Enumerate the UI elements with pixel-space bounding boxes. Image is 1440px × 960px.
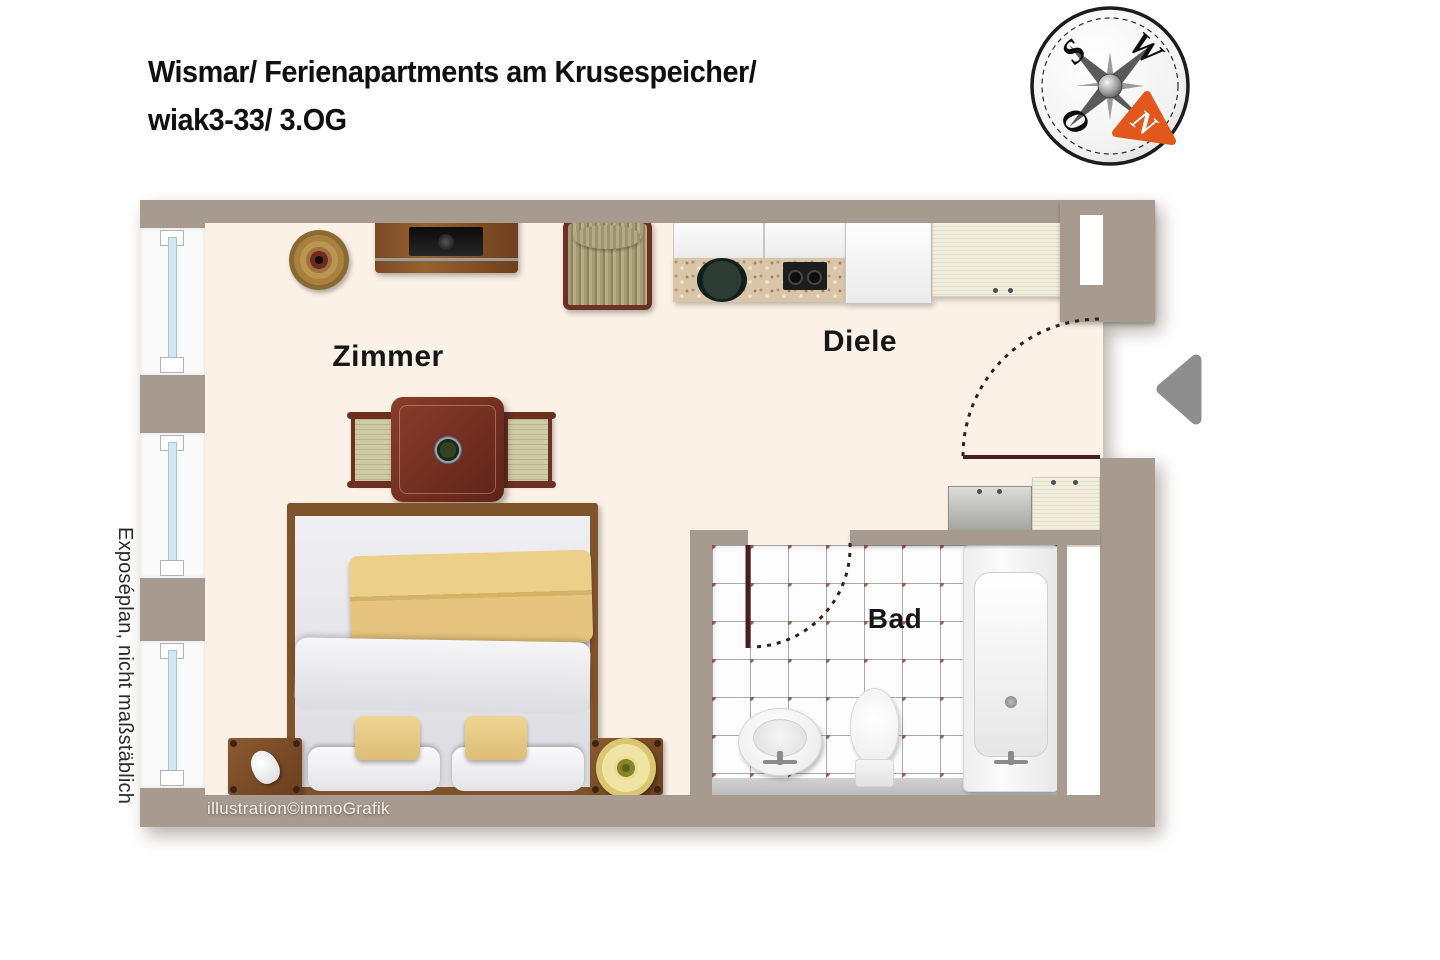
wall-niche-bath — [1067, 547, 1100, 795]
window-glass — [168, 650, 177, 779]
compass-rose-icon: S W O N — [1026, 2, 1194, 170]
kitchen-sink — [697, 258, 747, 302]
room-label-diele: Diele — [770, 325, 950, 359]
side-note: Exposéplan, nicht maßstäblich — [110, 527, 136, 827]
window — [140, 641, 205, 788]
dining-chair-right — [504, 416, 552, 484]
wall-right-lower — [1100, 458, 1155, 795]
decor-gold-plate — [596, 738, 656, 798]
wall-niche-upper — [1080, 215, 1103, 285]
bed-blanket — [349, 550, 593, 649]
entrance-arrow-icon — [1148, 344, 1210, 436]
window — [140, 433, 205, 578]
copyright-note: illustration©immoGrafik — [207, 799, 390, 819]
bed-cushion-left — [355, 716, 420, 760]
floorplan-page: Wismar/ Ferienapartments am Krusespeiche… — [0, 0, 1440, 960]
round-rug — [289, 230, 349, 290]
armchair — [563, 218, 652, 310]
hall-wardrobe — [932, 218, 1074, 297]
bathroom-wall-right — [1057, 545, 1067, 795]
window-glass — [168, 442, 177, 569]
decor-shell — [246, 746, 285, 788]
toilet — [850, 688, 899, 764]
cooktop — [783, 262, 827, 290]
washbasin — [738, 708, 822, 776]
washbasin-faucet-icon — [763, 751, 797, 767]
refrigerator-cabinet — [845, 214, 932, 304]
bed-cushion-right — [465, 716, 527, 760]
bathtub-faucet-icon — [994, 751, 1028, 767]
window-glass — [168, 237, 177, 366]
wall-right-upper — [1060, 200, 1155, 322]
room-label-zimmer: Zimmer — [300, 340, 476, 374]
tv-icon — [409, 227, 483, 256]
bathtub — [963, 545, 1059, 792]
title-line-2: wiak3-33/ 3.OG — [148, 96, 756, 144]
double-bed — [287, 503, 598, 795]
hall-sideboard-gray — [948, 486, 1032, 532]
bathroom-wall-top-right — [850, 530, 1100, 545]
bathroom-wall-left — [690, 530, 712, 795]
table-centerpiece — [434, 436, 462, 464]
hall-sideboard-cream — [1032, 477, 1100, 532]
wall-bottom: illustration©immoGrafik — [140, 795, 1155, 827]
bathtub-drain-icon — [1005, 696, 1017, 708]
page-title: Wismar/ Ferienapartments am Krusespeiche… — [148, 48, 756, 144]
floorplan: illustration©immoGrafik Zimmer Die — [140, 200, 1155, 827]
wall-top — [140, 200, 1155, 223]
bed-duvet — [294, 637, 590, 712]
nightstand-right — [590, 738, 663, 795]
dining-table — [391, 397, 504, 502]
room-label-bad: Bad — [845, 603, 945, 635]
title-line-1: Wismar/ Ferienapartments am Krusespeiche… — [148, 48, 756, 96]
window — [140, 228, 205, 375]
bathroom-wall-top-left — [690, 530, 748, 545]
nightstand-left — [228, 738, 302, 795]
